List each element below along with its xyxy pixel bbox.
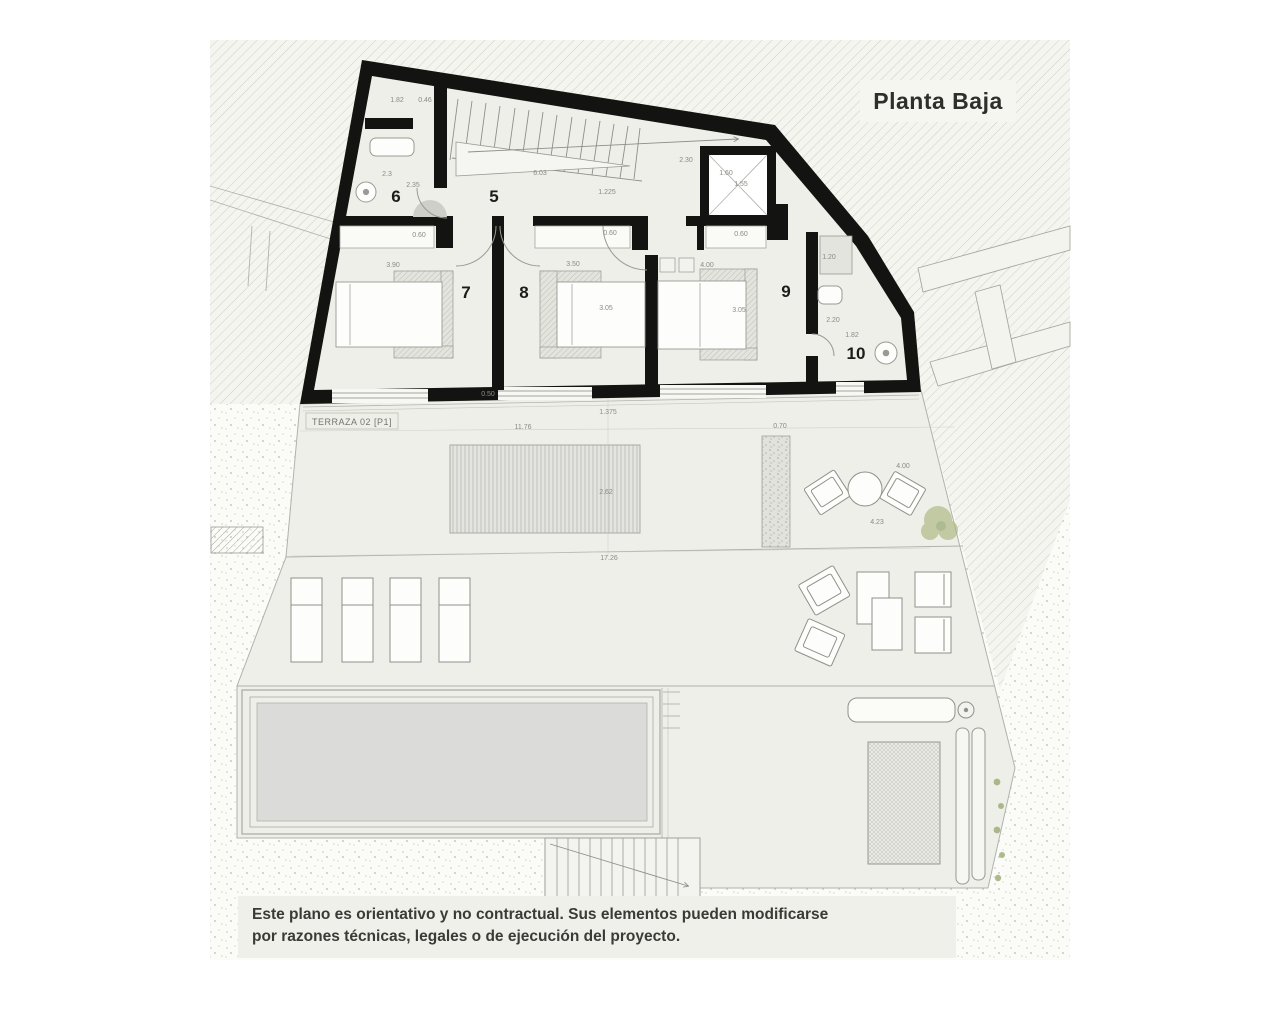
dimension-label: 0.50 xyxy=(481,391,495,398)
dimension-label: 3.05 xyxy=(732,307,746,314)
dimension-label: 2.30 xyxy=(679,157,693,164)
room-label-7: 7 xyxy=(461,283,470,302)
dimension-label: 0.60 xyxy=(412,232,426,239)
terraces: TERRAZA 02 [P1] xyxy=(211,390,1015,898)
dimension-label: 6.03 xyxy=(533,170,547,177)
garden-stair xyxy=(545,838,700,898)
chair xyxy=(915,572,951,607)
dimension-label: 4.00 xyxy=(700,262,714,269)
table xyxy=(872,598,902,650)
nightstand xyxy=(660,258,675,272)
sink xyxy=(818,286,842,304)
room-label-6: 6 xyxy=(391,187,400,206)
floor-plan-page: { "title": "Planta Baja", "disclaimer": … xyxy=(0,0,1280,1024)
dimension-label: 4.23 xyxy=(870,519,884,526)
dimension-label: 3.05 xyxy=(599,305,613,312)
dimension-label: 2.62 xyxy=(599,489,613,496)
dimension-label: 0.60 xyxy=(734,231,748,238)
terrace-label: TERRAZA 02 [P1] xyxy=(312,417,392,427)
dimension-label: 1.82 xyxy=(845,332,859,339)
dimension-label: 3.90 xyxy=(386,262,400,269)
chair xyxy=(915,617,951,653)
dimension-label: 1.375 xyxy=(599,409,617,416)
pool-water xyxy=(257,703,647,821)
dimension-label: 11.76 xyxy=(515,424,532,431)
dimension-label: 2.35 xyxy=(406,182,420,189)
bed-room7 xyxy=(336,271,453,358)
plan-title: Planta Baja xyxy=(873,88,1003,115)
bench xyxy=(956,728,969,884)
room-label-10: 10 xyxy=(847,344,866,363)
window xyxy=(498,387,592,400)
round-table xyxy=(848,472,882,506)
room-label-9: 9 xyxy=(781,282,790,301)
plan-title-box: Planta Baja xyxy=(860,80,1016,122)
dimension-label: 2.20 xyxy=(826,317,840,324)
dimension-label: 0.70 xyxy=(773,423,787,430)
planter-strip xyxy=(762,436,790,547)
disclaimer-line-1: Este plano es orientativo y no contractu… xyxy=(252,904,942,926)
dimension-label: 0.46 xyxy=(418,97,432,104)
dimension-label: 2.3 xyxy=(382,171,392,178)
window xyxy=(836,382,864,395)
dimension-label: 17.26 xyxy=(600,555,618,562)
bed-room8 xyxy=(540,271,645,358)
room-label-8: 8 xyxy=(519,283,528,302)
dimension-label: 1.60 xyxy=(719,170,733,177)
dimension-label: 0.60 xyxy=(603,230,617,237)
nightstand xyxy=(679,258,694,272)
room-label-5: 5 xyxy=(489,187,498,206)
disclaimer-box: Este plano es orientativo y no contractu… xyxy=(238,896,956,958)
dimension-label: 1.225 xyxy=(598,189,616,196)
spa-grill-area xyxy=(868,742,940,864)
pool xyxy=(242,690,680,834)
floor-plan-svg: TERRAZA 02 [P1] xyxy=(0,0,1280,1024)
window xyxy=(660,385,766,398)
window xyxy=(332,389,428,403)
disclaimer-line-2: por razones técnicas, legales o de ejecu… xyxy=(252,926,942,948)
dimension-label: 1.82 xyxy=(390,97,404,104)
dimension-label: 1.55 xyxy=(734,181,748,188)
boundary-wall-band xyxy=(211,527,263,553)
bench xyxy=(972,728,985,880)
sink xyxy=(370,138,414,156)
dimension-label: 3.50 xyxy=(566,261,580,268)
dimension-label: 1.20 xyxy=(822,254,836,261)
dimension-label: 4.00 xyxy=(896,463,910,470)
